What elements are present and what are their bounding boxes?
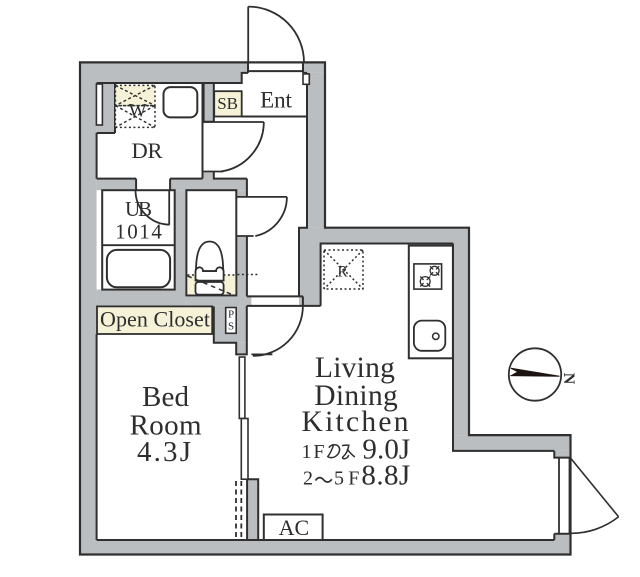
svg-text:S: S xyxy=(228,321,234,333)
svg-text:Living: Living xyxy=(315,352,395,384)
svg-text:Open Closet: Open Closet xyxy=(100,307,210,332)
svg-text:8.8J: 8.8J xyxy=(361,460,410,492)
svg-text:N: N xyxy=(560,373,577,385)
svg-text:AC: AC xyxy=(279,515,310,540)
svg-text:P: P xyxy=(228,309,234,321)
svg-text:DR: DR xyxy=(132,138,163,163)
svg-text:Bed: Bed xyxy=(142,381,190,413)
svg-text:R: R xyxy=(337,264,348,281)
svg-text:Ent: Ent xyxy=(260,88,292,113)
svg-text:1014: 1014 xyxy=(115,220,162,244)
svg-text:1F: 1F xyxy=(302,441,325,463)
svg-text:2: 2 xyxy=(303,468,313,490)
svg-text:SB: SB xyxy=(217,94,238,113)
svg-text:W: W xyxy=(129,101,147,122)
svg-text:4.3J: 4.3J xyxy=(137,436,191,468)
svg-text:UB: UB xyxy=(125,197,152,221)
